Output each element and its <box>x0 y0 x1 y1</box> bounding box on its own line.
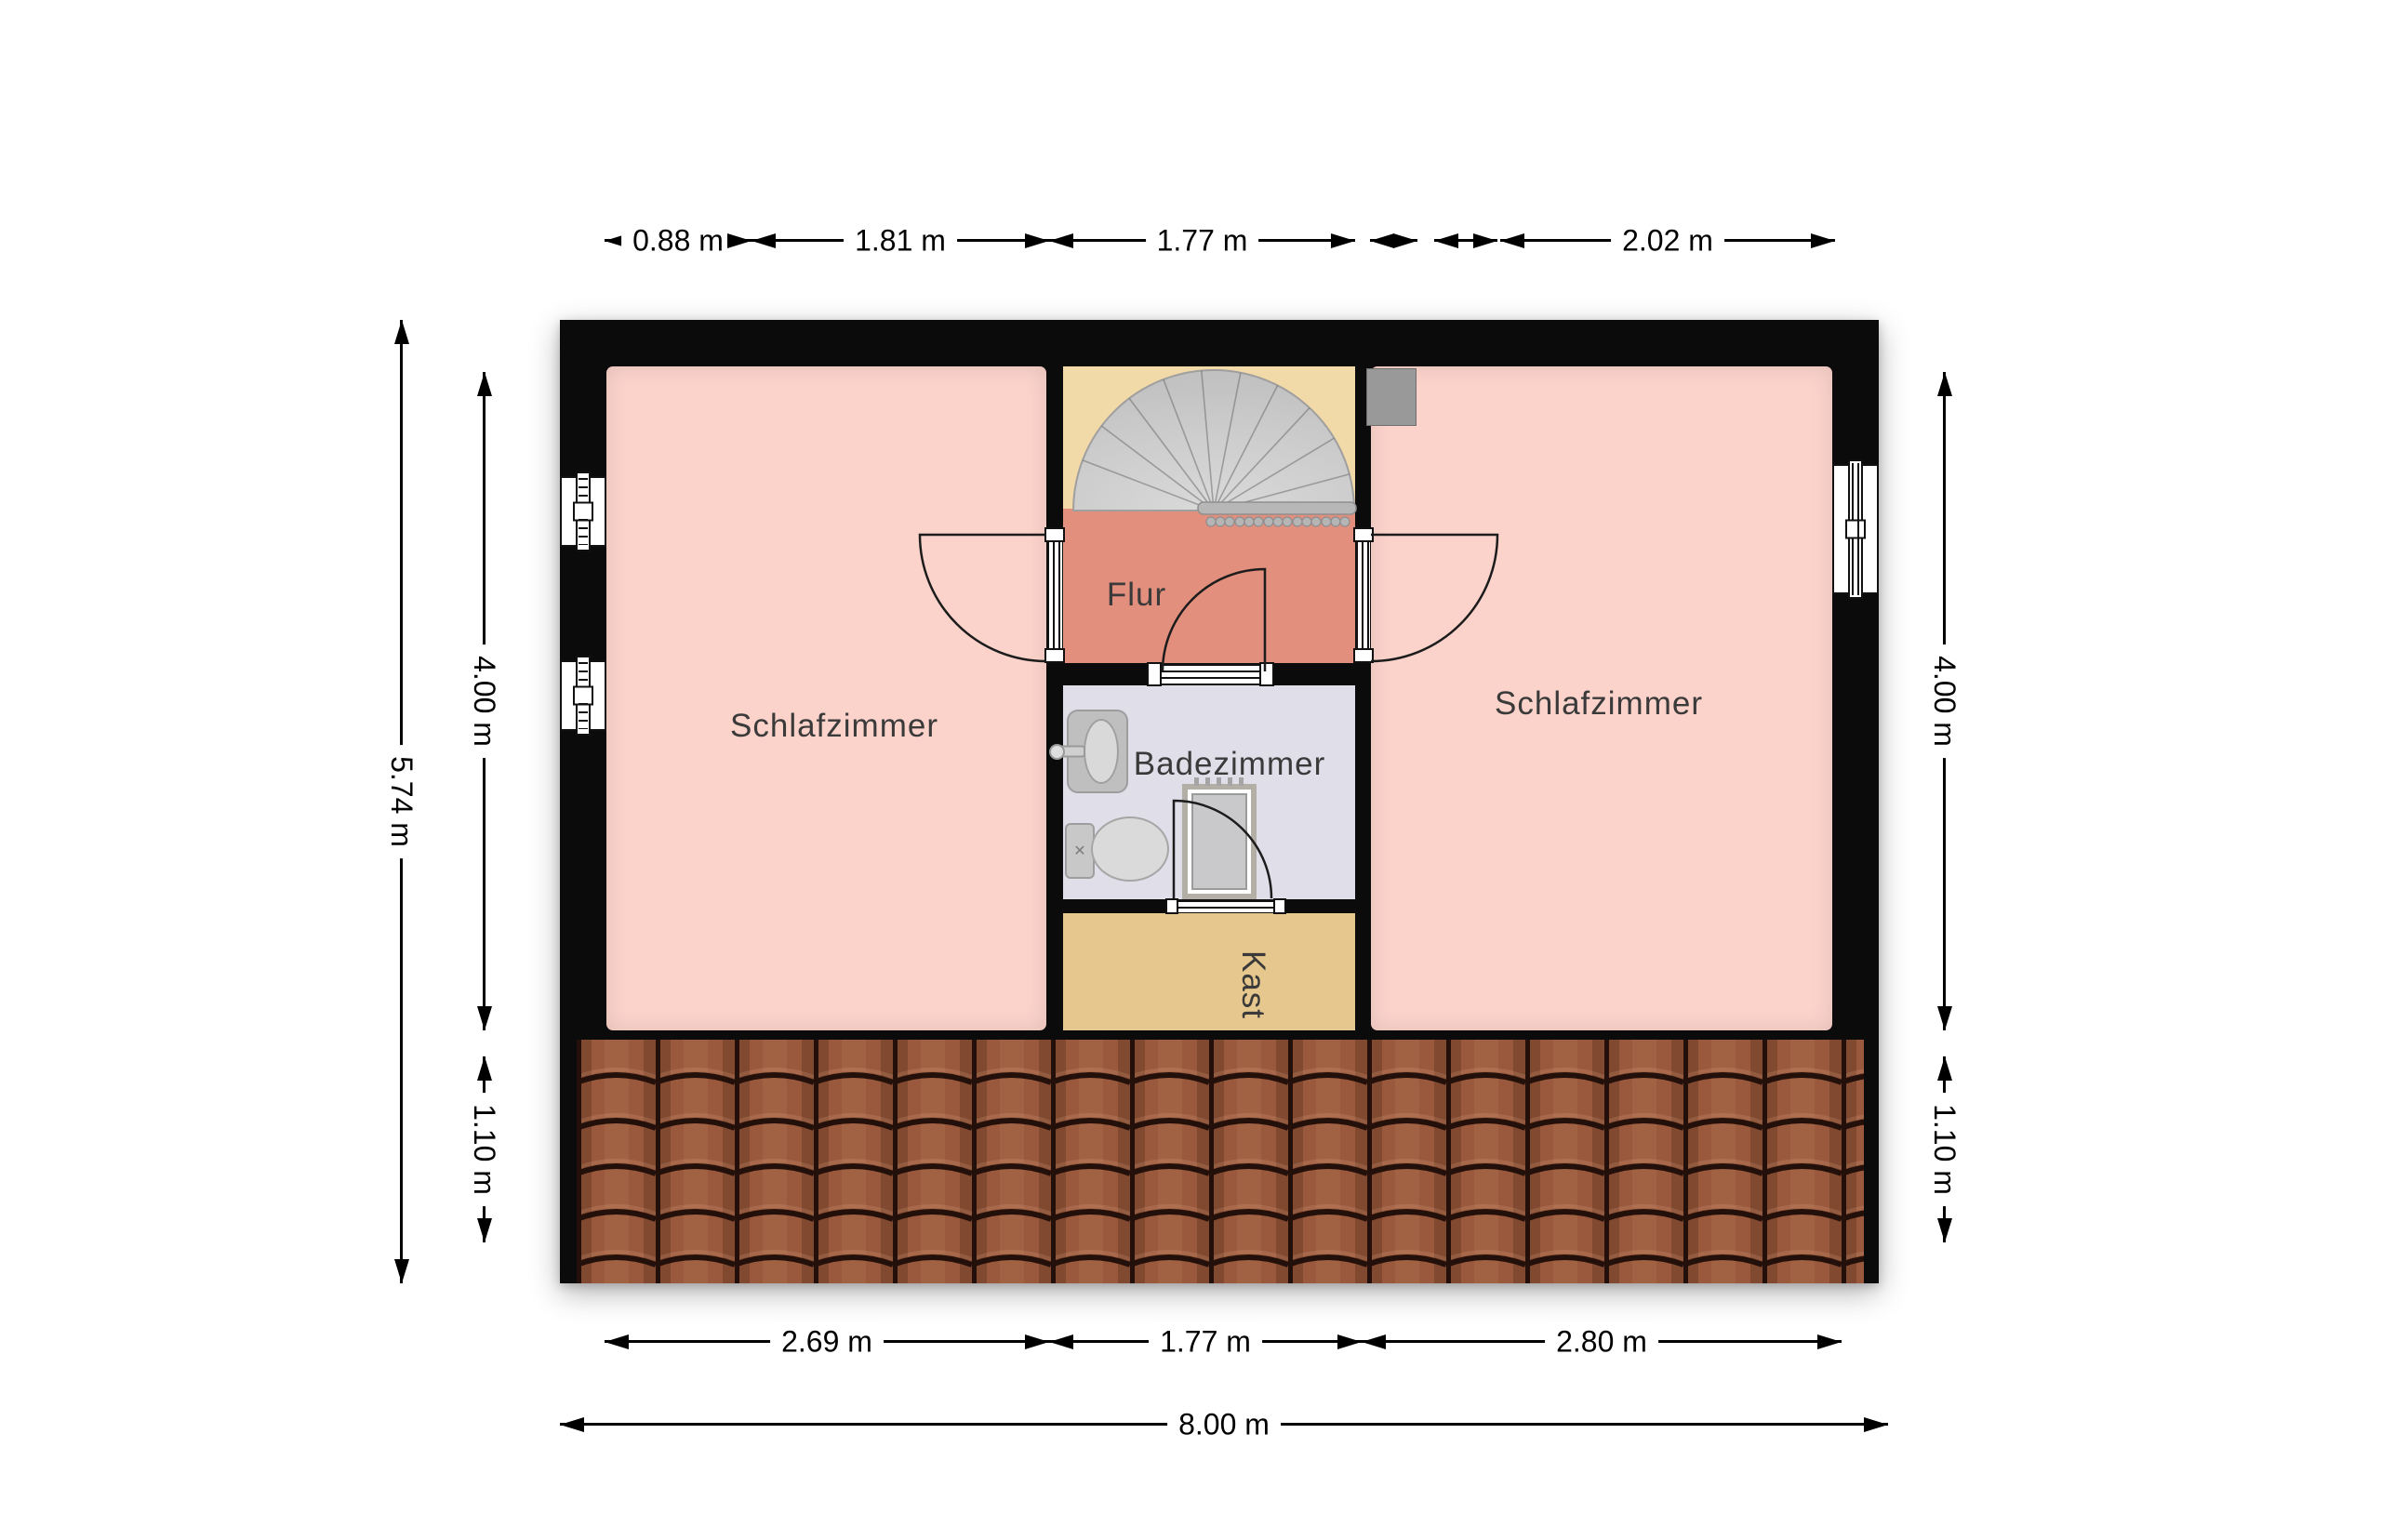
room-bedroom-left <box>606 366 1046 1030</box>
dim-left-upper: 4.00 m <box>483 372 486 1030</box>
window-frame <box>576 656 591 736</box>
dim-label: 0.88 m <box>621 221 735 259</box>
shower-icon <box>1182 784 1257 899</box>
dim-label: 4.00 m <box>1925 644 1963 758</box>
room-label-bathroom: Badezimmer <box>1134 746 1325 783</box>
door-stop <box>1259 662 1274 686</box>
dim-bottom-total: 8.00 m <box>560 1423 1888 1426</box>
dim-right-lower: 1.10 m <box>1943 1056 1946 1242</box>
dim-label: 4.00 m <box>465 644 503 758</box>
door-stop <box>1165 898 1178 914</box>
window-frame <box>576 471 591 551</box>
door-sill-hall-to-bathroom <box>1147 663 1274 685</box>
room-label-hall: Flur <box>1107 577 1166 614</box>
door-stop <box>1044 648 1065 663</box>
dim-label: 8.00 m <box>1167 1405 1281 1443</box>
door-jamb-hall-to-left-bedroom <box>1046 527 1063 663</box>
dim-bottom-1: 1.77 m <box>1049 1340 1362 1343</box>
door-stop <box>1044 527 1065 542</box>
dim-label: 2.80 m <box>1545 1322 1658 1361</box>
dim-top-2: 1.77 m <box>1049 239 1355 242</box>
dim-label: 1.81 m <box>844 221 957 259</box>
door-jamb-hall-to-right-bedroom <box>1355 527 1371 663</box>
stair-landing-area <box>1063 366 1355 509</box>
dim-right-upper: 4.00 m <box>1943 372 1946 1030</box>
dim-label: 1.10 m <box>1925 1093 1963 1206</box>
roof-tiles-icon <box>577 1040 1864 1283</box>
dim-top-1: 1.81 m <box>752 239 1049 242</box>
toilet-bowl-icon <box>1091 816 1169 882</box>
floor-plan-page: ✕ <box>0 0 2381 1540</box>
dim-label: 2.69 m <box>770 1322 884 1361</box>
floor-plan-canvas: ✕ <box>560 320 1879 1283</box>
dim-bottom-0: 2.69 m <box>605 1340 1049 1343</box>
sink-basin <box>1084 719 1119 784</box>
dim-label: 2.02 m <box>1611 221 1724 259</box>
door-sill-bathroom-to-closet <box>1165 899 1286 913</box>
door-stop <box>1353 648 1374 663</box>
window-icon-left-2 <box>560 660 606 731</box>
window-frame <box>1848 459 1863 599</box>
dim-label: 1.77 m <box>1149 1322 1262 1361</box>
dim-bottom-2: 2.80 m <box>1362 1340 1842 1343</box>
window-icon-left-1 <box>560 476 606 547</box>
shower-tray <box>1191 793 1247 890</box>
dim-top-3 <box>1370 239 1417 242</box>
door-stop <box>1353 527 1374 542</box>
window-icon-right <box>1832 464 1879 594</box>
sink-icon <box>1067 710 1128 793</box>
dim-top-0: 0.88 m <box>605 239 752 242</box>
dim-left-outer: 5.74 m <box>400 320 403 1283</box>
door-stop <box>1273 898 1286 914</box>
chimney-icon <box>1366 368 1417 426</box>
dim-left-lower: 1.10 m <box>483 1056 486 1242</box>
dim-top-4 <box>1434 239 1497 242</box>
faucet-icon <box>1057 746 1085 758</box>
dim-label: 1.10 m <box>465 1093 503 1206</box>
room-label-bedroom-right: Schlafzimmer <box>1495 685 1703 723</box>
dim-label: 5.74 m <box>382 745 420 858</box>
room-label-bedroom-left: Schlafzimmer <box>730 708 938 745</box>
dim-top-5: 2.02 m <box>1500 239 1835 242</box>
door-stop <box>1147 662 1162 686</box>
dim-label: 1.77 m <box>1146 221 1259 259</box>
room-label-closet: Kast <box>1234 950 1271 1019</box>
room-closet <box>1063 913 1355 1030</box>
